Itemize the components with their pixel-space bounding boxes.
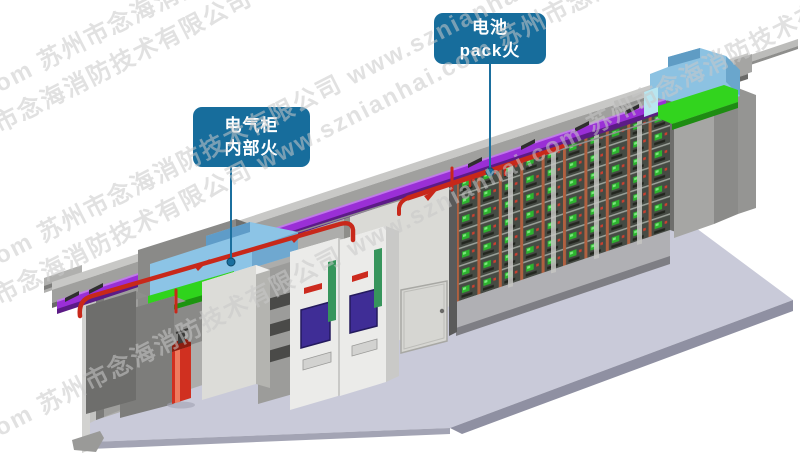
callout-electrical-cabinet-fire: 电气柜 内部火 <box>193 107 310 167</box>
cabinet-window <box>350 289 377 333</box>
callout-line1: 电气柜 <box>225 114 279 137</box>
callout-battery-pack-fire: 电池 pack火 <box>434 13 546 64</box>
callout-line2: 内部火 <box>225 137 279 160</box>
cabinet-window <box>301 302 330 348</box>
door-handle <box>440 309 444 313</box>
switchgear-cabinet-2 <box>340 226 399 396</box>
fire-door <box>401 281 447 353</box>
illustration-canvas: 电池 pack火 电气柜 内部火 www.sznianhai.com 苏州市念海… <box>0 0 800 470</box>
container-3d-scene <box>0 0 800 470</box>
cabinet-white <box>202 265 270 400</box>
callout-line1: 电池 <box>472 16 508 39</box>
callout-line2: pack火 <box>460 39 521 62</box>
